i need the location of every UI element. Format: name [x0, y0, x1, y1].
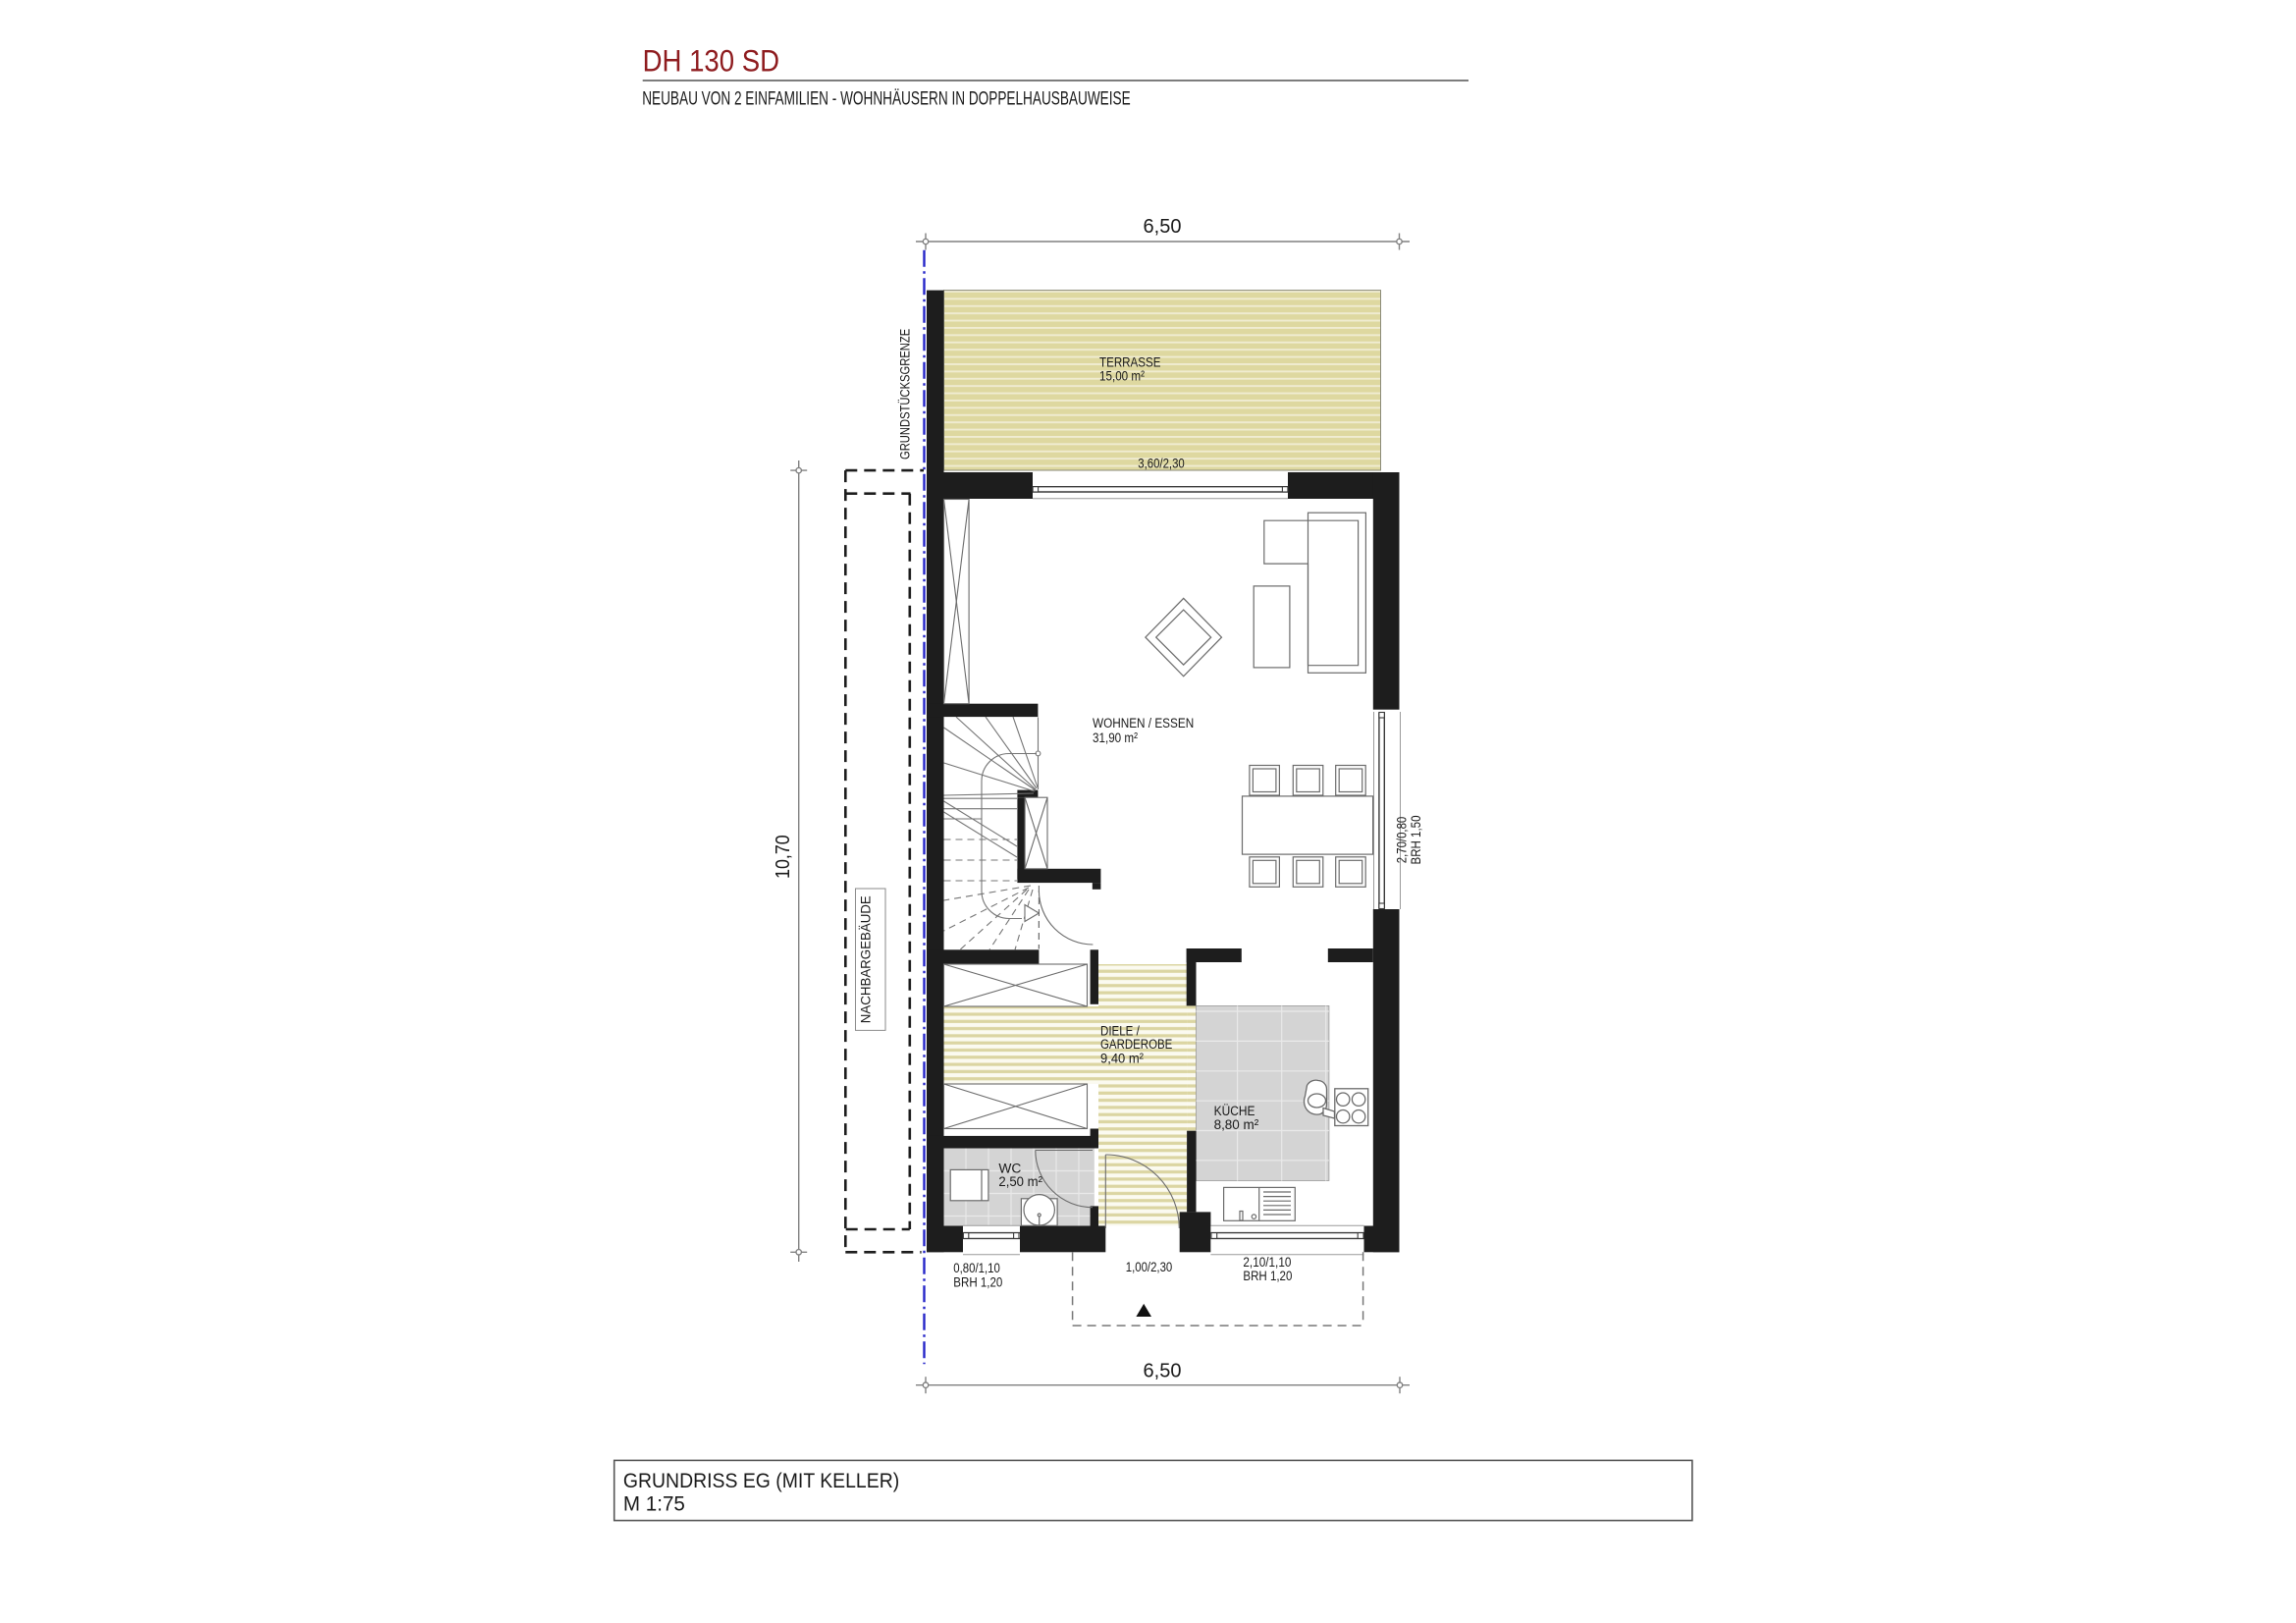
svg-text:10,70: 10,70 [773, 835, 794, 879]
svg-text:BRH 1,50: BRH 1,50 [1409, 816, 1423, 865]
svg-text:3,60/2,30: 3,60/2,30 [1138, 457, 1185, 471]
svg-text:15,00 m²: 15,00 m² [1099, 368, 1145, 384]
svg-text:6,50: 6,50 [1144, 1360, 1182, 1381]
svg-text:0,80/1,10: 0,80/1,10 [953, 1261, 1000, 1275]
svg-text:2,10/1,10: 2,10/1,10 [1243, 1255, 1291, 1270]
svg-text:BRH 1,20: BRH 1,20 [1243, 1269, 1292, 1283]
svg-text:6,50: 6,50 [1144, 216, 1182, 238]
svg-text:M 1:75: M 1:75 [623, 1492, 685, 1515]
svg-text:NACHBARGEBÄUDE: NACHBARGEBÄUDE [858, 895, 875, 1023]
svg-text:31,90 m²: 31,90 m² [1093, 730, 1138, 746]
svg-text:GRUNDSTÜCKSGRENZE: GRUNDSTÜCKSGRENZE [898, 329, 913, 460]
svg-text:GRUNDRISS EG (MIT KELLER): GRUNDRISS EG (MIT KELLER) [623, 1470, 899, 1492]
svg-text:2,50 m²: 2,50 m² [998, 1174, 1042, 1190]
svg-text:2,70/0,80: 2,70/0,80 [1395, 817, 1410, 864]
svg-text:1,00/2,30: 1,00/2,30 [1126, 1260, 1173, 1274]
svg-text:DH 130 SD: DH 130 SD [643, 43, 780, 79]
svg-text:9,40 m²: 9,40 m² [1100, 1052, 1144, 1067]
svg-text:NEUBAU VON 2 EINFAMILIEN - WOH: NEUBAU VON 2 EINFAMILIEN - WOHNHÄUSERN I… [642, 89, 1130, 110]
svg-text:BRH 1,20: BRH 1,20 [953, 1275, 1002, 1290]
svg-text:8,80 m²: 8,80 m² [1214, 1117, 1259, 1133]
svg-text:WOHNEN / ESSEN: WOHNEN / ESSEN [1093, 716, 1194, 731]
